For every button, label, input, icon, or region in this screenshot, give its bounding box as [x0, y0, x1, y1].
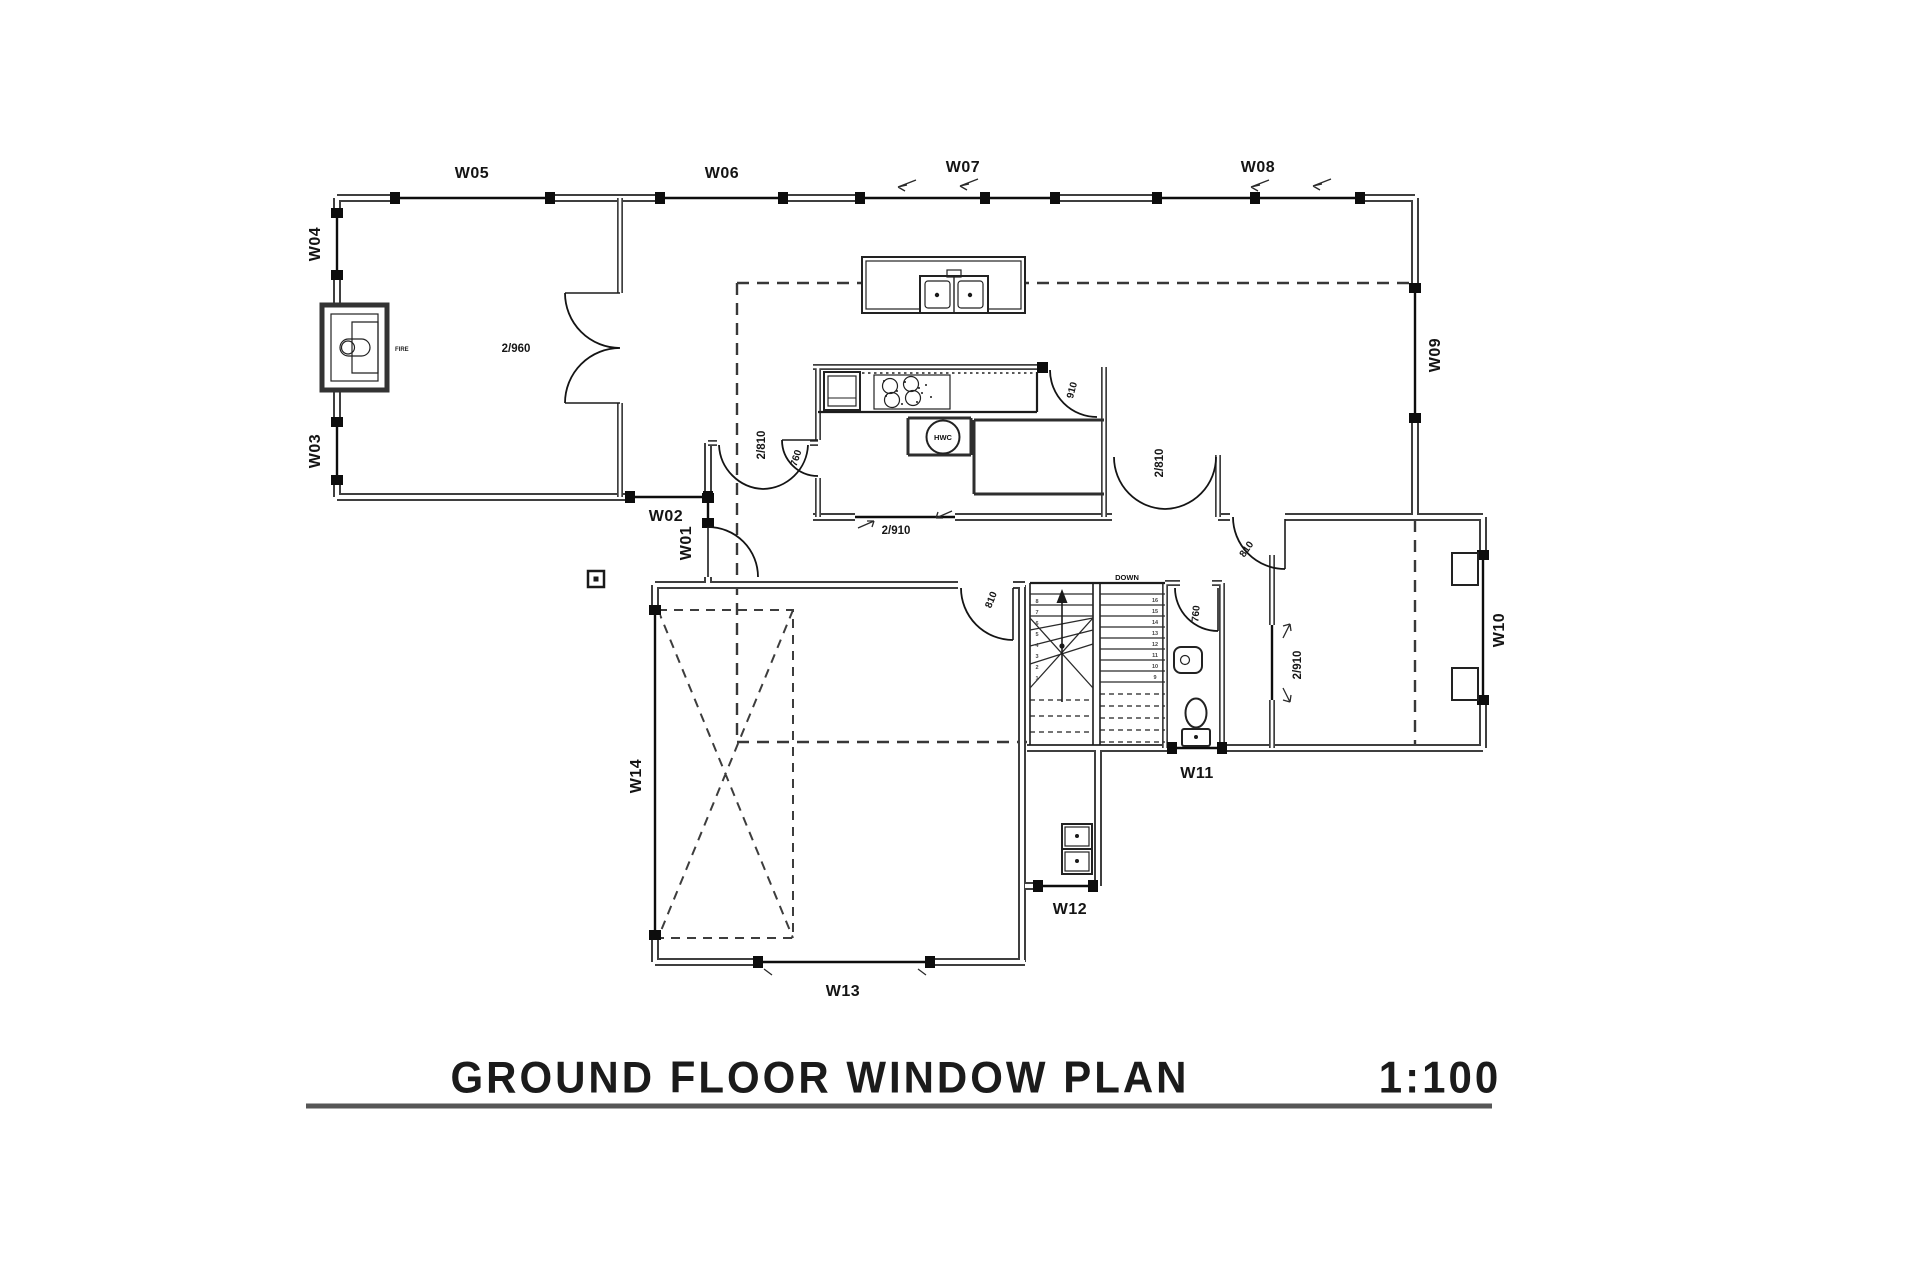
label-door-2960: 2/960	[502, 343, 531, 355]
kitchen-island	[862, 257, 1025, 313]
label-w02: W02	[649, 508, 683, 525]
hwc-label: HWC	[934, 433, 952, 442]
svg-text:10: 10	[1152, 664, 1158, 670]
scullery-wall-jamb	[1037, 362, 1048, 373]
label-door-dining-2810: 2/810	[756, 431, 768, 460]
island-double-sink	[920, 270, 988, 313]
title-block: GROUND FLOOR WINDOW PLAN 1:100	[306, 1054, 1501, 1106]
lounge-double-door	[565, 293, 620, 403]
door-labels: 2/960 2/810 760 910 2/910 2/810 810 2/91…	[502, 343, 1304, 679]
svg-text:13: 13	[1152, 631, 1158, 637]
label-w09: W09	[1427, 338, 1444, 372]
fixtures: FIRE	[322, 257, 1478, 874]
svg-text:1: 1	[1035, 676, 1038, 682]
label-hall-slider-2910: 2/910	[882, 525, 911, 537]
svg-text:14: 14	[1152, 620, 1159, 626]
label-w11: W11	[1180, 765, 1214, 782]
hot-water-cylinder: HWC	[927, 421, 960, 454]
svg-text:2: 2	[1035, 665, 1038, 671]
stove-cooktop	[874, 375, 950, 409]
svg-text:11: 11	[1152, 653, 1158, 659]
svg-text:12: 12	[1152, 642, 1158, 648]
hand-basin	[1174, 647, 1202, 673]
stair-direction-arrow-icon	[1057, 589, 1068, 702]
label-w06: W06	[705, 165, 739, 182]
label-door-living-2810: 2/810	[1154, 449, 1166, 478]
label-w14: W14	[628, 759, 645, 793]
garage-dashed-cross-box	[658, 610, 793, 938]
label-door-family-810: 810	[1238, 539, 1257, 559]
staircase: DOWN 16 15 14 13 12 11 10 9 1 2 3 4 5 6 …	[1030, 573, 1165, 745]
family-slider-door	[1272, 624, 1291, 702]
w13-sill-ticks	[764, 969, 926, 975]
label-w03: W03	[307, 434, 324, 468]
label-w13: W13	[826, 983, 860, 1000]
label-w04: W04	[307, 227, 324, 261]
floor-plan-drawing: DOWN 16 15 14 13 12 11 10 9 1 2 3 4 5 6 …	[0, 0, 1920, 1280]
label-door-wc-760: 760	[1190, 605, 1202, 623]
fridge	[824, 372, 860, 410]
svg-text:9: 9	[1153, 675, 1156, 681]
label-w10: W10	[1491, 613, 1508, 647]
label-w12: W12	[1053, 901, 1087, 918]
svg-text:3: 3	[1035, 654, 1038, 660]
front-entry-door	[708, 527, 758, 577]
svg-text:15: 15	[1152, 609, 1158, 615]
label-w05: W05	[455, 165, 489, 182]
fireplace-label: FIRE	[395, 347, 409, 353]
fireplace: FIRE	[322, 305, 409, 390]
label-w01: W01	[678, 526, 695, 560]
kitchen-bench	[818, 372, 1037, 412]
porch-post	[588, 571, 604, 587]
svg-text:8: 8	[1035, 599, 1038, 605]
laundry-tub	[1062, 824, 1092, 874]
family-entry-door	[1233, 517, 1285, 569]
plan-scale: 1:100	[1379, 1054, 1501, 1103]
svg-text:16: 16	[1152, 598, 1158, 604]
label-door-garage-810: 810	[983, 590, 1000, 610]
label-w07: W07	[946, 159, 980, 176]
window-opening-arrow-icons	[898, 179, 1331, 191]
svg-text:7: 7	[1035, 610, 1038, 616]
plan-title: GROUND FLOOR WINDOW PLAN	[450, 1054, 1189, 1103]
floor-plan-page: DOWN 16 15 14 13 12 11 10 9 1 2 3 4 5 6 …	[0, 0, 1920, 1280]
window-seat-boxes	[1452, 553, 1478, 700]
svg-text:5: 5	[1035, 632, 1038, 638]
toilet	[1182, 699, 1210, 747]
stairs-down-label: DOWN	[1115, 573, 1139, 582]
svg-text:6: 6	[1035, 621, 1038, 627]
label-door-kitchen-910: 910	[1065, 380, 1080, 399]
label-w08: W08	[1241, 159, 1275, 176]
label-family-slider-2910: 2/910	[1292, 651, 1304, 680]
